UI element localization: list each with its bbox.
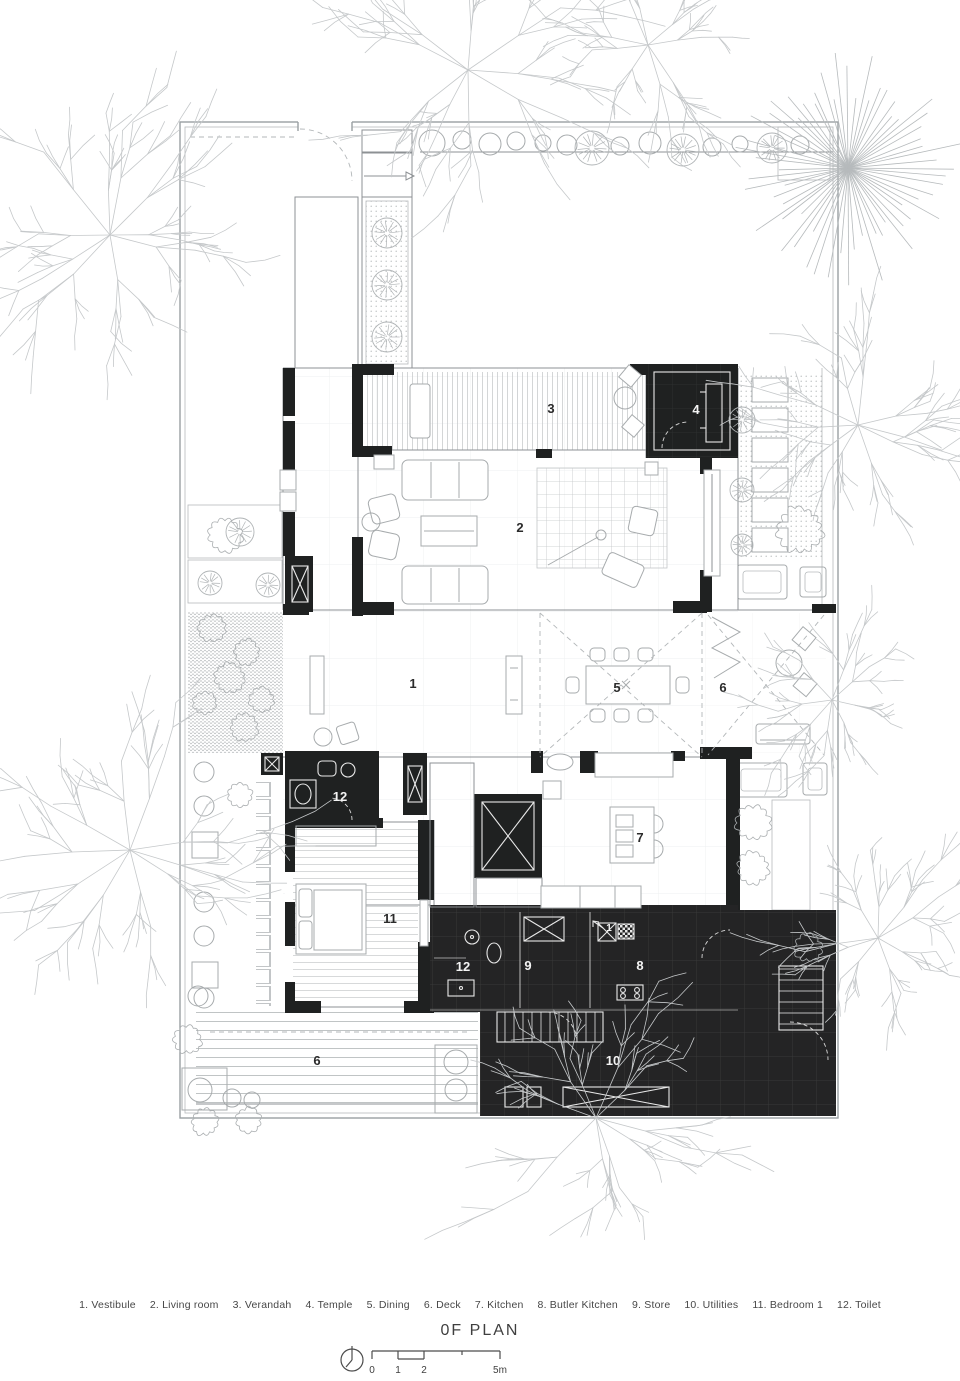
- bush-icon: [191, 1108, 219, 1136]
- legend-item: 8. Butler Kitchen: [538, 1299, 618, 1311]
- garden-tree-icon: [198, 571, 222, 595]
- door-mats-upper: [737, 565, 826, 599]
- plan-title: 0F PLAN: [0, 1322, 960, 1340]
- room-label-deck-bottom: 6: [313, 1053, 320, 1068]
- room-label-temple: 4: [692, 402, 700, 417]
- bush-icon: [737, 850, 770, 885]
- verandah-floor: [362, 372, 646, 450]
- side-walkway: [772, 800, 810, 910]
- scale-tick: 5m: [493, 1365, 507, 1376]
- bush-icon: [236, 1106, 262, 1134]
- legend-item: 2. Living room: [150, 1299, 219, 1311]
- scale-tick: 1: [395, 1365, 401, 1376]
- legend-item: 6. Deck: [424, 1299, 461, 1311]
- legend-item: 9. Store: [632, 1299, 670, 1311]
- garden-tree-icon: [256, 573, 280, 597]
- room-label-living: 2: [516, 520, 523, 535]
- tree-sketch: [0, 51, 280, 400]
- verandah-bench: [410, 384, 430, 438]
- legend-item: 4. Temple: [305, 1299, 352, 1311]
- room-label-butler-kitchen: 8: [636, 958, 643, 973]
- scale-tick: 0: [369, 1365, 375, 1376]
- shrub-icon: [575, 131, 609, 165]
- garden-tree-icon: [226, 518, 254, 546]
- level-marker: 1: [606, 923, 612, 934]
- room-label-bedroom: 11: [383, 911, 397, 926]
- legend-item: 12. Toilet: [837, 1299, 881, 1311]
- shrub-icon: [757, 133, 787, 163]
- legend-item: 3. Verandah: [233, 1299, 292, 1311]
- legend-item: 1. Vestibule: [79, 1299, 136, 1311]
- scale-bar: 0 1 2 5m: [330, 1340, 550, 1381]
- room-label-verandah: 3: [547, 401, 554, 416]
- deck-floor: [196, 1012, 478, 1104]
- legend-item: 10. Utilities: [684, 1299, 738, 1311]
- room-label-vestibule: 1: [409, 676, 416, 691]
- toilet-upper-room: [285, 751, 379, 825]
- scale-bar-ticks: 0 1 2 5m: [369, 1365, 507, 1376]
- legend-item: 11. Bedroom 1: [752, 1299, 823, 1311]
- room-label-store: 9: [524, 958, 531, 973]
- floor-plan-page: 1 2 3 4 5 6 7 8 9 10 11 12 12 6 1 1. Ves…: [0, 0, 960, 1381]
- tree-sketch: [527, 0, 749, 171]
- room-label-toilet-lower: 12: [456, 959, 470, 974]
- floor-plan-drawing: 1 2 3 4 5 6 7 8 9 10 11 12 12 6 1: [0, 0, 960, 1290]
- room-label-dining: 5: [613, 680, 620, 695]
- courtyard-planting: [188, 612, 293, 753]
- bush-icon: [228, 782, 253, 807]
- room-label-toilet-upper: 12: [333, 789, 347, 804]
- legend: 1. Vestibule 2. Living room 3. Verandah …: [0, 1299, 960, 1311]
- hedge-strip: [256, 782, 271, 1006]
- legend-item: 7. Kitchen: [475, 1299, 524, 1311]
- scale-tick: 2: [421, 1365, 427, 1376]
- room-label-kitchen: 7: [636, 830, 643, 845]
- palm-tree-icon: [736, 53, 960, 285]
- scale-bar-graphic: [372, 1351, 500, 1359]
- legend-item: 5. Dining: [367, 1299, 410, 1311]
- north-symbol-icon: [341, 1346, 363, 1371]
